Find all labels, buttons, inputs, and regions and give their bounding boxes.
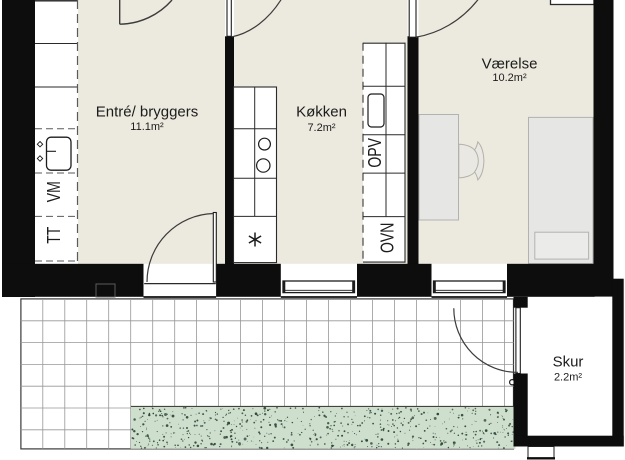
svg-text:7.2m²: 7.2m²	[307, 122, 335, 134]
svg-text:2.2m²: 2.2m²	[554, 371, 582, 383]
svg-text:OVN: OVN	[378, 223, 398, 253]
svg-text:10.2m²: 10.2m²	[492, 72, 527, 84]
svg-text:11.1m²: 11.1m²	[130, 121, 164, 133]
svg-text:Skur: Skur	[553, 353, 584, 370]
svg-text:Køkken: Køkken	[296, 104, 347, 121]
svg-text:Entré/ bryggers: Entré/ bryggers	[96, 104, 199, 121]
svg-text:OPV: OPV	[365, 138, 385, 168]
svg-text:Værelse: Værelse	[482, 55, 538, 72]
svg-text:TT: TT	[44, 227, 64, 244]
svg-text:VM: VM	[44, 181, 64, 202]
